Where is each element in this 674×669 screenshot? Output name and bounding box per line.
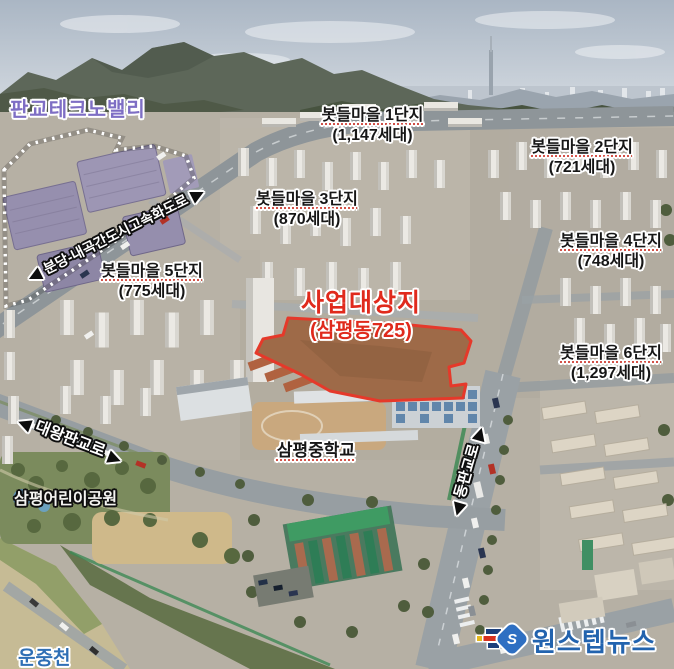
aerial-map: 판교테크노밸리 봇들마을 1단지 (1,147세대) 봇들마을 2단지 (721… bbox=[0, 0, 674, 669]
complex-name: 봇들마을 3단지 bbox=[238, 190, 376, 210]
arrow-right-icon: ▶ bbox=[469, 425, 489, 442]
complex-name: 봇들마을 1단지 bbox=[300, 106, 445, 126]
site-title: 사업대상지 bbox=[276, 288, 446, 319]
label-botdeul-2: 봇들마을 2단지 (721세대) bbox=[512, 138, 652, 178]
label-pangyo-techno-valley: 판교테크노밸리 bbox=[10, 98, 170, 123]
watermark-text: 원스텝뉴스 bbox=[532, 622, 657, 659]
complex-units: (721세대) bbox=[512, 158, 652, 178]
site-subtitle: (삼평동725) bbox=[276, 319, 446, 344]
watermark-logo: S 원스텝뉴스 bbox=[485, 621, 657, 659]
complex-name: 봇들마을 5단지 bbox=[84, 262, 220, 282]
complex-units: (775세대) bbox=[84, 282, 220, 302]
label-botdeul-3: 봇들마을 3단지 (870세대) bbox=[238, 190, 376, 230]
arrow-left-icon: ◀ bbox=[16, 412, 34, 433]
label-botdeul-4: 봇들마을 4단지 (748세대) bbox=[546, 232, 674, 272]
complex-name: 봇들마을 2단지 bbox=[512, 138, 652, 158]
label-botdeul-6: 봇들마을 6단지 (1,297세대) bbox=[546, 344, 674, 384]
complex-units: (748세대) bbox=[546, 252, 674, 272]
arrow-left-icon: ◀ bbox=[447, 500, 467, 517]
label-botdeul-5: 봇들마을 5단지 (775세대) bbox=[84, 262, 220, 302]
label-school: 삼평중학교 bbox=[264, 440, 368, 461]
arrow-right-icon: ▶ bbox=[106, 447, 124, 468]
complex-name: 봇들마을 4단지 bbox=[546, 232, 674, 252]
label-stream: 운중천 bbox=[18, 647, 70, 669]
onestep-news-logo-icon: S bbox=[485, 621, 527, 659]
label-park: 삼평어린이공원 bbox=[14, 490, 154, 510]
complex-units: (870세대) bbox=[238, 210, 376, 230]
complex-name: 봇들마을 6단지 bbox=[546, 344, 674, 364]
complex-units: (1,147세대) bbox=[300, 126, 445, 146]
label-project-site: 사업대상지 (삼평동725) bbox=[276, 288, 446, 344]
label-botdeul-1: 봇들마을 1단지 (1,147세대) bbox=[300, 106, 445, 146]
complex-units: (1,297세대) bbox=[546, 364, 674, 384]
